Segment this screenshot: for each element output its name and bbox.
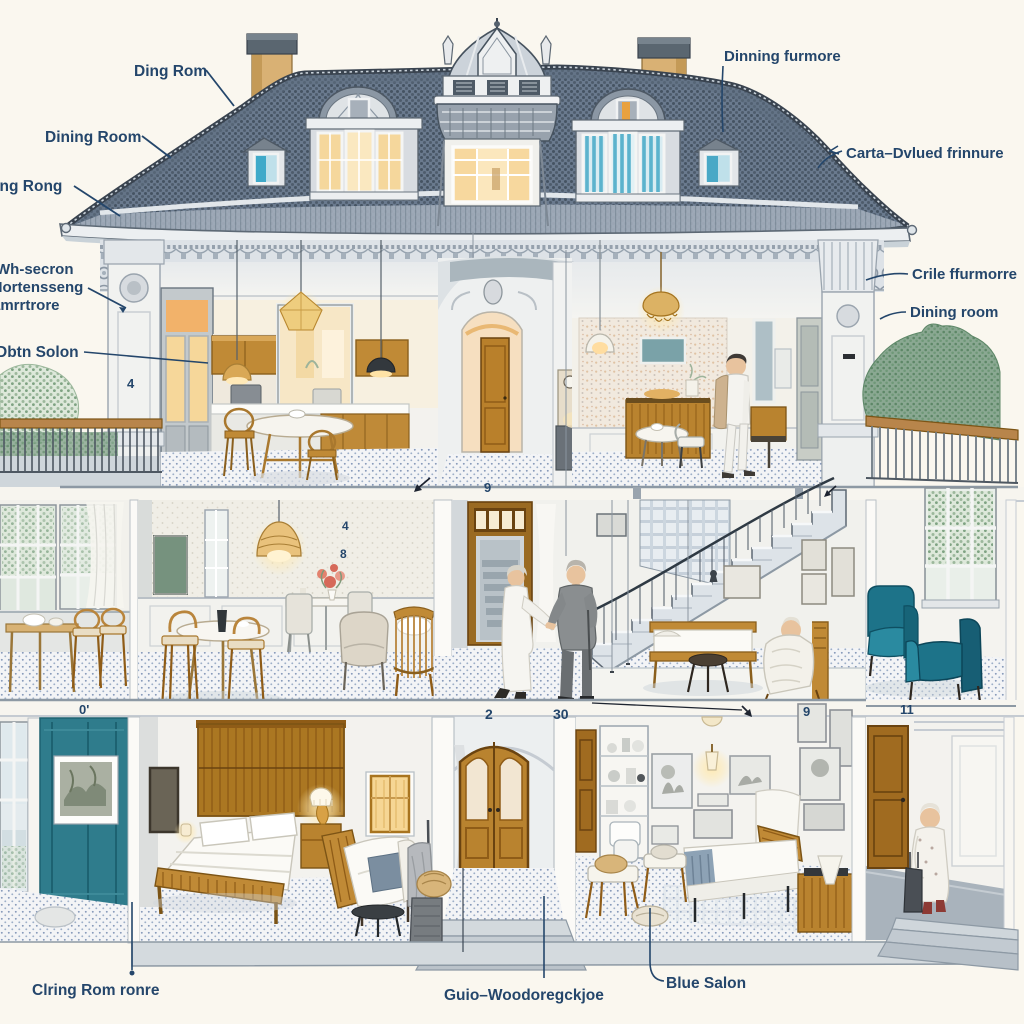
svg-text:Dining room: Dining room xyxy=(910,304,998,321)
svg-text:11: 11 xyxy=(900,702,914,717)
svg-text:4: 4 xyxy=(342,519,349,533)
svg-text:Guio–Woodoregckjoe: Guio–Woodoregckjoe xyxy=(444,987,604,1004)
svg-text:8: 8 xyxy=(340,547,347,561)
svg-text:aving Rong: aving Rong xyxy=(0,178,62,195)
svg-text:2: 2 xyxy=(485,706,493,722)
svg-text:Crile ffurmorre: Crile ffurmorre xyxy=(912,266,1017,283)
svg-text:Carta–Dvlued frinnure: Carta–Dvlued frinnure xyxy=(846,145,1004,162)
svg-text:4: 4 xyxy=(127,376,135,391)
svg-text:9: 9 xyxy=(484,480,491,495)
svg-text:Blue Salon: Blue Salon xyxy=(666,975,746,992)
svg-text:Mortensseng: Mortensseng xyxy=(0,279,83,296)
svg-text:Dbtn Solon: Dbtn Solon xyxy=(0,344,79,361)
svg-text:Dinning furmore: Dinning furmore xyxy=(724,48,841,65)
svg-text:Clring Rom ronre: Clring Rom ronre xyxy=(32,982,160,999)
svg-text:0': 0' xyxy=(79,702,89,717)
svg-text:Wh-secron: Wh-secron xyxy=(0,261,74,278)
svg-text:30: 30 xyxy=(553,706,569,722)
svg-text:Ding Rom: Ding Rom xyxy=(134,63,207,80)
svg-text:Dining Room: Dining Room xyxy=(45,129,141,146)
svg-text:amrrtrore: amrrtrore xyxy=(0,297,60,314)
svg-text:9: 9 xyxy=(803,704,810,719)
